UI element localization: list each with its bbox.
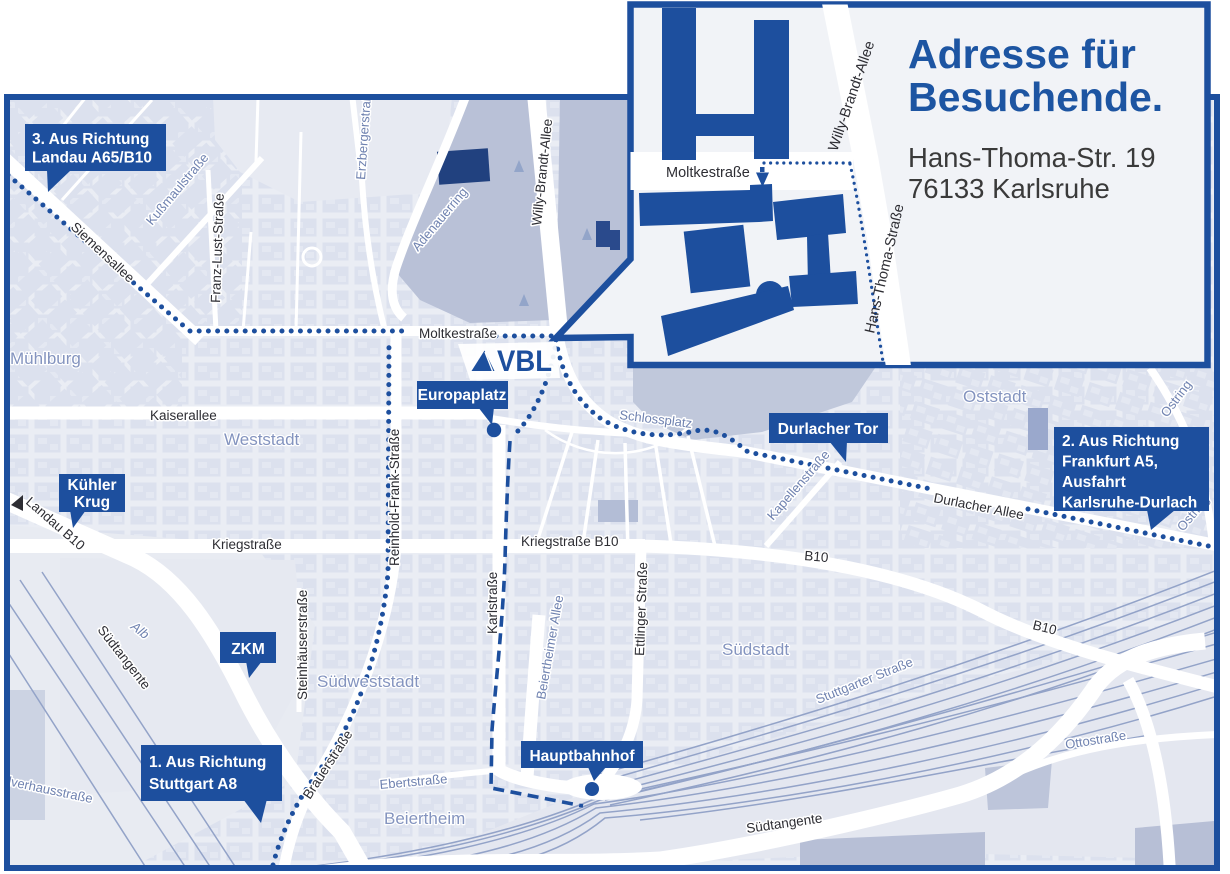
svg-text:B10: B10 (804, 548, 829, 565)
svg-text:Steinhäuserstraße: Steinhäuserstraße (295, 590, 310, 700)
svg-text:Moltkestraße: Moltkestraße (666, 165, 750, 181)
svg-text:Durlacher Tor: Durlacher Tor (778, 421, 879, 438)
svg-text:ZKM: ZKM (231, 641, 265, 658)
svg-text:Kühler: Kühler (67, 477, 116, 494)
svg-text:1. Aus Richtung: 1. Aus Richtung (149, 754, 266, 771)
svg-text:Hauptbahnhof: Hauptbahnhof (529, 748, 635, 765)
svg-text:Hans-Thoma-Str. 19: Hans-Thoma-Str. 19 (908, 142, 1156, 173)
svg-text:Besuchende.: Besuchende. (908, 74, 1163, 120)
svg-text:Weststadt: Weststadt (224, 430, 300, 449)
svg-text:VBL: VBL (497, 345, 552, 378)
svg-text:Moltkestraße: Moltkestraße (419, 326, 497, 341)
svg-text:Kaiserallee: Kaiserallee (150, 408, 217, 423)
svg-text:Ausfahrt: Ausfahrt (1062, 474, 1126, 491)
svg-text:Karlstraße: Karlstraße (485, 572, 500, 634)
svg-text:Krug: Krug (74, 494, 110, 511)
svg-text:Kriegstraße: Kriegstraße (212, 537, 282, 552)
svg-text:Oststadt: Oststadt (963, 387, 1027, 406)
svg-text:Frankfurt A5,: Frankfurt A5, (1062, 454, 1158, 471)
svg-text:76133 Karlsruhe: 76133 Karlsruhe (908, 173, 1110, 204)
svg-text:Kriegstraße B10: Kriegstraße B10 (521, 534, 619, 549)
svg-text:Südweststadt: Südweststadt (317, 672, 419, 691)
svg-text:Landau A65/B10: Landau A65/B10 (32, 150, 152, 167)
svg-text:Südstadt: Südstadt (722, 640, 789, 659)
svg-text:3. Aus Richtung: 3. Aus Richtung (32, 131, 149, 148)
svg-text:Karlsruhe-Durlach: Karlsruhe-Durlach (1062, 495, 1197, 512)
svg-text:Stuttgart A8: Stuttgart A8 (149, 776, 237, 793)
svg-text:Reinhold-Frank-Straße: Reinhold-Frank-Straße (387, 429, 402, 566)
svg-text:Beiertheim: Beiertheim (384, 809, 465, 828)
svg-text:Adresse für: Adresse für (908, 31, 1136, 77)
svg-text:2. Aus Richtung: 2. Aus Richtung (1062, 433, 1179, 450)
svg-text:Europaplatz: Europaplatz (418, 387, 507, 404)
svg-text:Mühlburg: Mühlburg (10, 349, 81, 368)
